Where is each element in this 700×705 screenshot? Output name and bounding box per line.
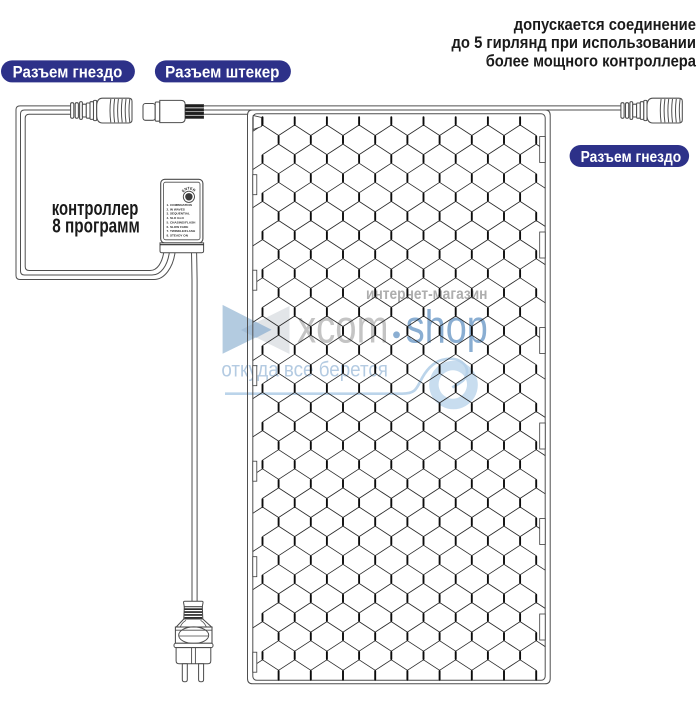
svg-text:более мощного контроллера: более мощного контроллера	[486, 51, 697, 70]
svg-text:2. IN WAVES: 2. IN WAVES	[167, 207, 185, 211]
svg-text:до 5 гирлянд при использовании: до 5 гирлянд при использовании	[452, 33, 697, 52]
svg-text:Разъем штекер: Разъем штекер	[165, 64, 279, 82]
svg-text:8. STEADY ON: 8. STEADY ON	[167, 233, 189, 237]
svg-text:допускается соединение: допускается соединение	[514, 15, 696, 34]
svg-text:8 программ: 8 программ	[52, 216, 140, 238]
svg-text:Разъем гнездо: Разъем гнездо	[13, 64, 123, 82]
svg-text:Разъем гнездо: Разъем гнездо	[581, 149, 682, 166]
svg-text:shop: shop	[406, 301, 488, 353]
svg-text:3. SEQUENTIAL: 3. SEQUENTIAL	[167, 212, 190, 216]
svg-text:5. CHASING/FLASH: 5. CHASING/FLASH	[167, 220, 197, 224]
